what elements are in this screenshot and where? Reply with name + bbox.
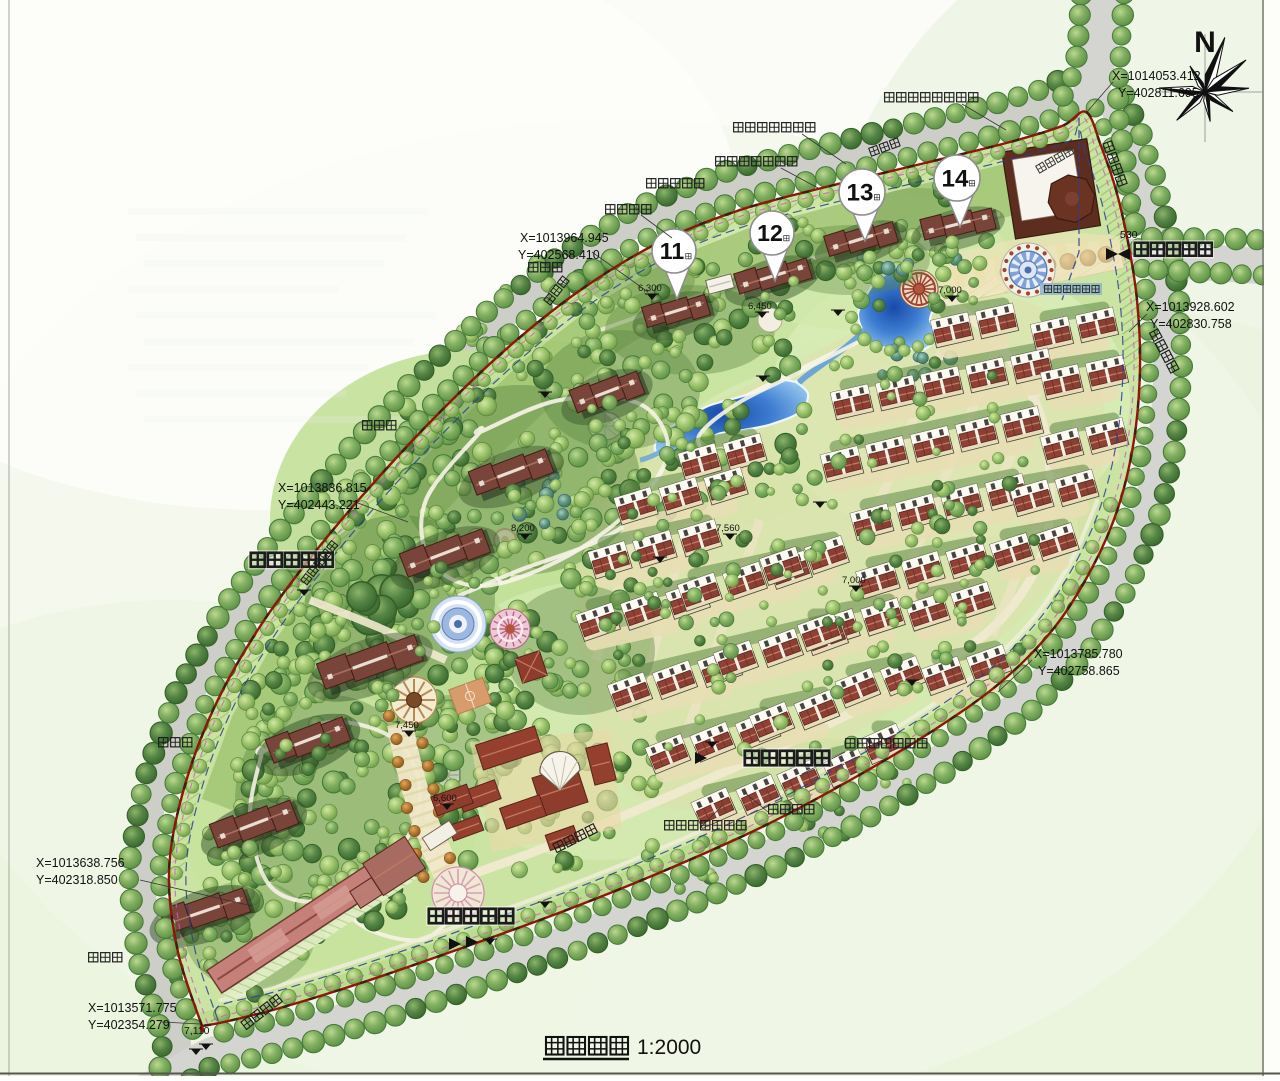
svg-text:Y=402354.279: Y=402354.279 (88, 1018, 170, 1032)
svg-text:Y=402758.865: Y=402758.865 (1038, 664, 1120, 678)
svg-text:7,450: 7,450 (395, 720, 419, 731)
svg-text:7,560: 7,560 (716, 523, 740, 534)
svg-text:1:2000: 1:2000 (637, 1036, 701, 1059)
svg-text:13: 13 (847, 179, 874, 206)
svg-text:X=1013638.756: X=1013638.756 (36, 856, 125, 870)
svg-text:X=1013964.945: X=1013964.945 (520, 231, 609, 245)
svg-text:7,000: 7,000 (938, 285, 962, 296)
svg-text:X=1013785.780: X=1013785.780 (1034, 647, 1123, 661)
svg-text:530: 530 (1120, 229, 1138, 241)
svg-text:Y=402830.758: Y=402830.758 (1150, 317, 1232, 331)
svg-text:7,110: 7,110 (184, 1025, 210, 1037)
svg-text:X=1013571.775: X=1013571.775 (88, 1001, 177, 1015)
svg-text:Y=402318.850: Y=402318.850 (36, 873, 118, 887)
svg-text:Y=402443.221: Y=402443.221 (278, 498, 360, 512)
svg-text:11: 11 (660, 238, 685, 264)
svg-text:Y=402568.410: Y=402568.410 (518, 248, 600, 262)
svg-text:X=1013836.815: X=1013836.815 (278, 481, 367, 495)
svg-text:N: N (1194, 26, 1216, 59)
svg-text:6,600: 6,600 (433, 793, 457, 804)
svg-text:Y=402811.695: Y=402811.695 (1118, 86, 1199, 100)
svg-text:6,450: 6,450 (748, 301, 772, 312)
svg-text:X=1014053.412: X=1014053.412 (1112, 69, 1201, 83)
svg-text:8,200: 8,200 (511, 523, 535, 534)
svg-text:X=1013928.602: X=1013928.602 (1146, 300, 1235, 314)
svg-text:12: 12 (757, 220, 783, 246)
svg-text:7,000: 7,000 (842, 575, 866, 586)
svg-text:14: 14 (942, 165, 969, 192)
svg-text:6,300: 6,300 (638, 283, 662, 294)
